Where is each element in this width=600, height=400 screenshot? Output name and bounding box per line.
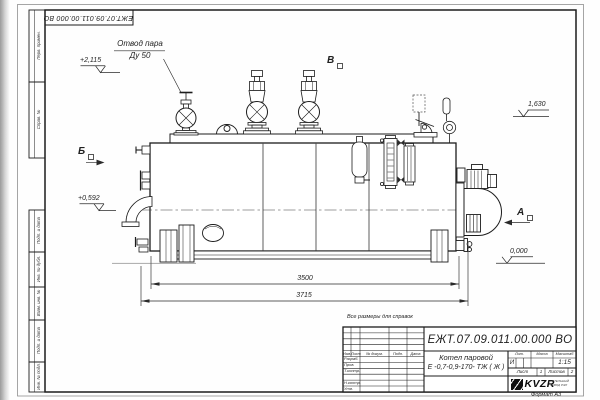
margin-label-inv-dubl: Инв. № дубл. [36, 252, 41, 286]
view-label-v-subscript [337, 63, 343, 69]
front-nozzles [141, 171, 151, 191]
scan-shadow-edge [0, 0, 10, 400]
view-label-v: В [327, 56, 334, 67]
format-note: Формат А3 [531, 393, 561, 399]
burner-motor [467, 165, 497, 189]
margin-label-inv-podl: Инв. № подл. [36, 362, 41, 391]
product-name: Котел паровой [424, 354, 508, 362]
dimension-3715: 3715 [287, 292, 321, 299]
front-fittings [122, 146, 152, 252]
view-label-b-subscript [88, 154, 94, 160]
margin-label-perv-primen: Перв. примен. [36, 10, 41, 81]
tb-scale-value: 1:15 [553, 360, 576, 367]
view-label-a-subscript [527, 215, 533, 221]
burner-junction-box [467, 215, 481, 233]
tb-lit-value: И [508, 360, 516, 366]
margin-label-sprav-no: Справ. № [36, 82, 41, 157]
product-model: Е -0,7-0,9-170- ТЖ ( Ж ) [424, 364, 508, 371]
tb-mass-label: Масса [531, 352, 553, 356]
dimension-3500: 3500 [288, 275, 322, 282]
margin-label-podp-data-2: Подп. и дата [36, 320, 41, 361]
tb-col-list: Лист [351, 352, 360, 356]
tb-col-doc: № докум. [360, 352, 389, 356]
kvzr-logo-subtext-line2: ЗАВОД РЭП [550, 383, 567, 387]
tb-col-izm: Изм. [343, 352, 351, 356]
lower-front-nozzles [136, 237, 149, 252]
tb-sheets-label: Листов [545, 370, 568, 375]
safety-valve-1 [244, 71, 271, 135]
tb-row-nkontr: Н.контр. [344, 381, 361, 385]
front-support-channel [179, 225, 194, 262]
steam-outlet-valve [174, 93, 198, 136]
level-mark-0592: +0,592 [78, 195, 100, 202]
steam-outlet-callout-line2: Ду 50 [112, 52, 168, 60]
level-mark-2115: +2,115 [80, 57, 101, 64]
reference-dimensions-note: Все размеры для справок [347, 315, 413, 321]
front-elbow-pipe [122, 197, 152, 227]
tb-sheet-label: Лист [508, 370, 537, 375]
margin-label-vzam-inv: Взам. инв. № [36, 287, 41, 319]
lever-safety-device [413, 95, 437, 137]
tb-row-razrab: Разраб. [344, 357, 358, 361]
title-block-designation: ЕЖТ.07.09.011.00.000 ВО [424, 330, 576, 350]
corner-stamp-designation: ЕЖТ.07.09.011.00.000 ВО [45, 10, 133, 25]
ghost-outline [413, 95, 425, 112]
drawing-sheet: ЕЖТ.07.09.011.00.000 ВО Перв. примен. Сп… [0, 0, 600, 400]
rear-bottom-fitting [456, 239, 472, 252]
level-mark-0000: 0,000 [510, 248, 528, 255]
top-drain-cock [136, 146, 150, 154]
burner-assembly [456, 165, 502, 252]
tb-row-prov: Пров. [344, 363, 355, 367]
tb-lit-label: Лит. [508, 352, 531, 356]
tb-row-tkontr: Т.контр. [344, 369, 360, 373]
view-label-a: А [517, 208, 524, 219]
gauge-glass-column-2 [404, 144, 415, 186]
view-label-b: Б [78, 147, 85, 158]
margin-label-podp-data-1: Подп. и дата [36, 210, 41, 251]
sensor-capsule [443, 98, 456, 143]
kvzr-logo-icon [511, 379, 523, 391]
safety-valve-2 [296, 71, 323, 135]
tb-col-podp: Подп. [389, 352, 407, 356]
steam-outlet-callout-line1: Отвод пара [112, 40, 168, 48]
level-mark-1630: 1,630 [528, 101, 546, 108]
tb-sheets-value: 2 [568, 370, 576, 375]
tb-scale-label: Масштаб [553, 352, 576, 356]
tb-row-utv: Утв. [344, 387, 353, 391]
tb-col-data: Дата [407, 352, 424, 356]
lifting-lug [217, 125, 238, 134]
kvzr-logo-subtext: КОТЕЛЬНЫЙЗАВОД РЭП [550, 380, 569, 388]
manhole-oval [203, 225, 224, 242]
tb-sheet-value: 1 [537, 370, 545, 375]
